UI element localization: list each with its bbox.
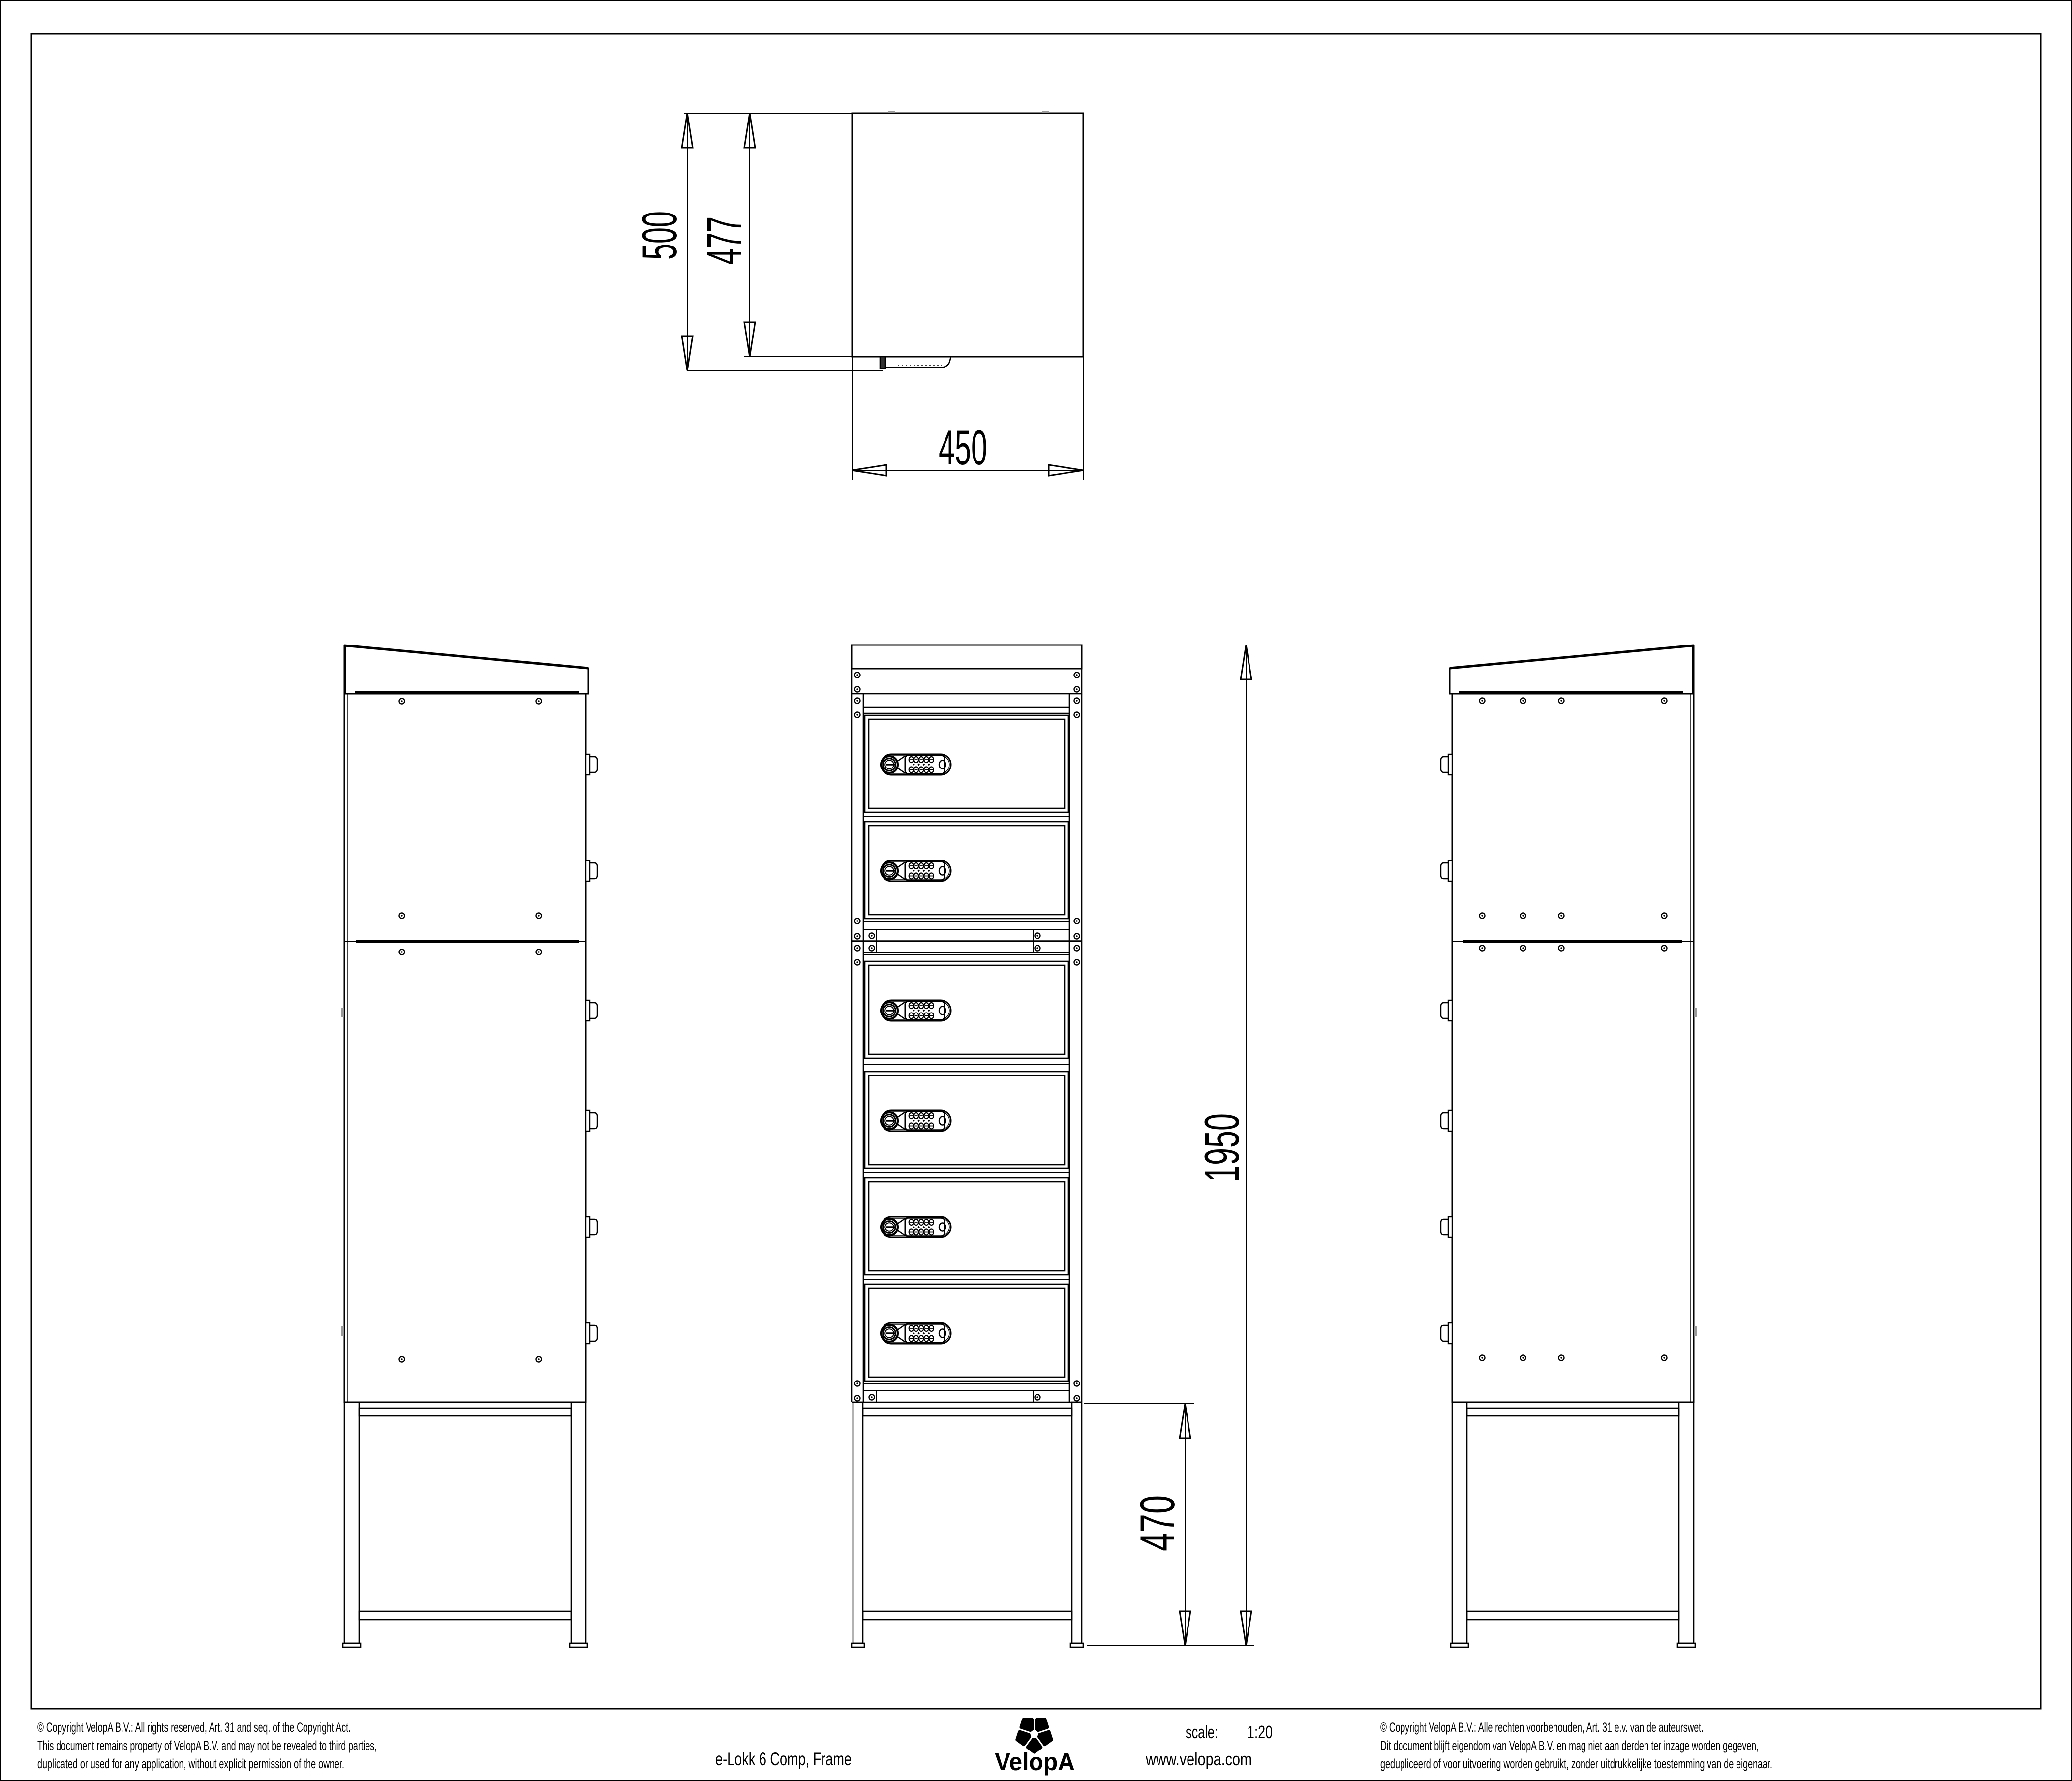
svg-text:500: 500 xyxy=(632,211,687,260)
svg-text:© Copyright VelopA B.V.: Alle: © Copyright VelopA B.V.: Alle rechten vo… xyxy=(1380,1720,1704,1735)
svg-text:© Copyright VelopA B.V.: All: © Copyright VelopA B.V.: All rights rese… xyxy=(37,1720,351,1735)
svg-text:www.velopa.com: www.velopa.com xyxy=(1145,1749,1252,1769)
svg-text:1:20: 1:20 xyxy=(1247,1722,1273,1742)
svg-text:1950: 1950 xyxy=(1194,1113,1249,1182)
svg-text:470: 470 xyxy=(1130,1495,1185,1551)
svg-text:Dit document blijft eigendom v: Dit document blijft eigendom van VelopA … xyxy=(1380,1738,1759,1753)
svg-text:477: 477 xyxy=(697,216,751,265)
svg-text:This document remains property: This document remains property of VelopA… xyxy=(37,1738,377,1753)
svg-text:gedupliceerd of voor uitvoerin: gedupliceerd of voor uitvoering worden g… xyxy=(1380,1756,1772,1771)
svg-text:scale:: scale: xyxy=(1186,1722,1218,1742)
svg-text:450: 450 xyxy=(939,420,987,475)
svg-text:duplicated or used for any app: duplicated or used for any application, … xyxy=(37,1756,344,1771)
svg-text:VelopA: VelopA xyxy=(995,1748,1075,1776)
svg-text:e-Lokk 6 Comp, Frame: e-Lokk 6 Comp, Frame xyxy=(715,1749,852,1769)
